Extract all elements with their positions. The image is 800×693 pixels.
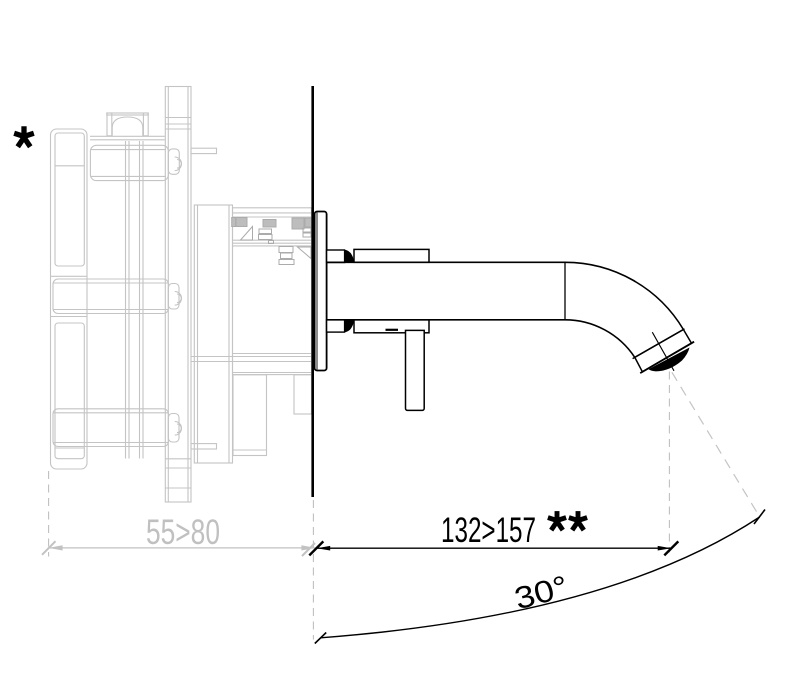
svg-text:55>80: 55>80 [146, 512, 220, 552]
svg-text:132>157: 132>157 [441, 510, 536, 550]
